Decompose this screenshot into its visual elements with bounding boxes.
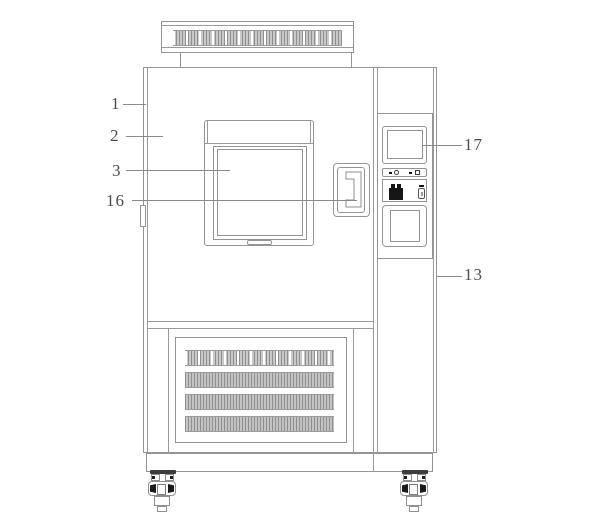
module-dash-icon	[419, 185, 424, 187]
switch-mark-icon	[421, 192, 423, 196]
caster-left	[148, 470, 178, 514]
lower-left-column-line	[168, 328, 169, 453]
indicator-dash-icon	[409, 172, 412, 174]
toggle-switch	[418, 188, 425, 199]
cabinet-inner-left-line	[147, 67, 148, 453]
door-band-left-line	[207, 121, 208, 143]
base-skirt	[146, 453, 433, 472]
handle-grip-icon	[340, 170, 364, 210]
caster-fork	[409, 484, 418, 495]
leader-line-16	[132, 200, 357, 201]
top-vent-upper-line	[162, 25, 353, 26]
control-screen-inner	[387, 130, 423, 159]
base-divider-line	[373, 453, 374, 472]
mid-divider-upper-line	[147, 321, 373, 322]
top-vent-grille	[173, 30, 342, 46]
vent-neck	[180, 53, 352, 68]
caster-wheel-tip	[409, 506, 419, 512]
part-label-1: 1	[111, 95, 121, 112]
door-hinge	[140, 205, 146, 227]
part-label-3: 3	[112, 162, 122, 179]
door-latch	[247, 240, 272, 245]
lower-right-column-line	[353, 328, 354, 453]
part-label-16: 16	[106, 192, 125, 209]
knob-icon	[394, 170, 399, 175]
top-vent-lower-line	[162, 47, 353, 48]
caster-bolt	[403, 474, 412, 481]
leader-line-13	[437, 276, 462, 277]
cabinet-inner-right-line	[433, 67, 434, 453]
caster-wheel-tip	[157, 506, 167, 512]
louver-strip-2	[185, 372, 334, 388]
figure-canvas: 1 2 3 16 17 13	[0, 0, 600, 525]
mini-square-icon	[415, 170, 420, 175]
window-glass	[217, 149, 303, 236]
caster-wheel-block	[154, 496, 170, 506]
door-band-line	[205, 143, 313, 144]
leader-line-1	[123, 104, 146, 105]
indicator-dash-icon	[389, 172, 392, 174]
louver-strip-3	[185, 394, 334, 410]
panel-divider-left	[373, 67, 374, 453]
caster-wheel-block	[406, 496, 422, 506]
button-strip	[382, 168, 427, 177]
door-band-right-line	[310, 121, 311, 143]
caster-bolt	[151, 474, 160, 481]
leader-line-2	[126, 136, 163, 137]
louver-strip-4	[185, 416, 334, 432]
start-button	[389, 188, 403, 200]
caster-bolt	[417, 474, 426, 481]
leader-line-17	[423, 145, 462, 146]
caster-bolt	[165, 474, 174, 481]
part-label-2: 2	[110, 127, 120, 144]
part-label-17: 17	[464, 136, 483, 153]
mid-divider-lower-line	[147, 328, 373, 329]
caster-fork	[157, 484, 166, 495]
part-label-13: 13	[464, 266, 483, 283]
caster-right	[400, 470, 430, 514]
control-module	[382, 179, 427, 202]
leader-line-3	[126, 170, 230, 171]
access-port-inner	[390, 210, 420, 242]
louver-strip-1	[185, 350, 334, 366]
